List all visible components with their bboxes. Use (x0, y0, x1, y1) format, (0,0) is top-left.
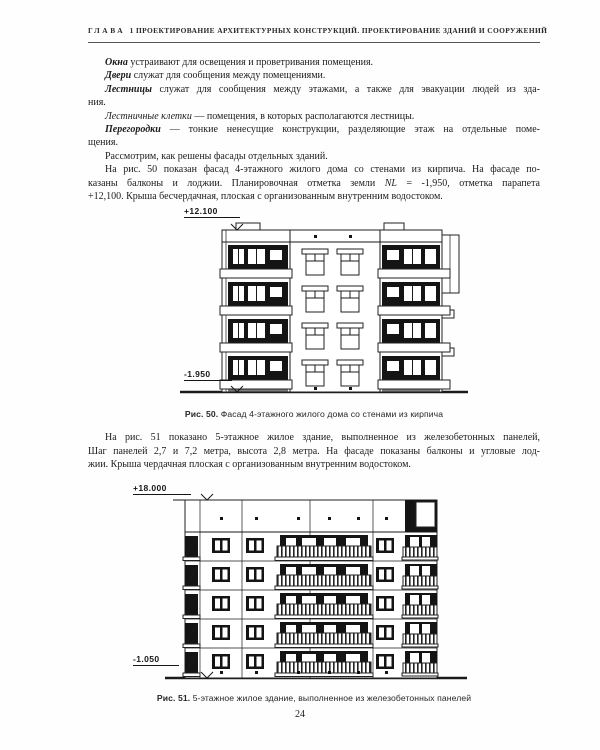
figure-51-caption: Рис. 51. 5-этажное жилое здание, выполне… (88, 693, 540, 703)
page-number: 24 (0, 709, 600, 720)
facade-elevation-svg-fig51 (128, 482, 535, 689)
text-run: Шаг панелей 2,7 и 7,2 метра, высота 2,8 … (88, 446, 540, 457)
text-line: казаны балконы и лоджии. Планировочная о… (88, 177, 540, 190)
text-run: Рассмотрим, как решены фасады отдельных … (105, 151, 328, 162)
text-run: На рис. 51 показано 5-этажное жилое здан… (105, 432, 540, 443)
term-lestnichnye-kletki: Лестничные клетки (105, 111, 192, 122)
text-line: Лестничные клетки — помещения, в которых… (88, 110, 540, 123)
text-line: +12,100. Крыша бесчердачная, плоская с о… (88, 190, 540, 203)
book-page: ГЛАВА 1 ПРОЕКТИРОВАНИЕ АРХИТЕКТУРНЫХ КОН… (0, 0, 600, 750)
nl-mark: NL (385, 178, 397, 189)
elevation-mark-roof: +18.000 (133, 483, 191, 495)
figure-51-drawing: +18.000 -1.050 (128, 482, 535, 689)
elevation-mark-parapet: +12.100 (184, 206, 240, 218)
text-run: жии. Крыша чердачная плоская с организов… (88, 459, 411, 470)
text-line: щения. (88, 136, 540, 149)
text-line: жии. Крыша чердачная плоская с организов… (88, 458, 540, 471)
text-run: На рис. 50 показан фасад 4-этажного жило… (105, 164, 540, 175)
figure-51-caption-text: 5-этажное жилое здание, выполненное из ж… (190, 693, 471, 703)
elevation-mark-ground: -1.950 (184, 369, 232, 381)
text-run: казаны балконы и лоджии. Планировочная о… (88, 178, 385, 189)
term-okna: Окна (105, 57, 128, 68)
text-line: Окна устраивают для освещения и проветри… (88, 56, 540, 69)
term-dveri: Двери (105, 70, 131, 81)
text-run: служат для сообщения между этажами, а та… (152, 84, 540, 95)
body-text-block-1: Окна устраивают для освещения и проветри… (88, 56, 540, 203)
text-run: служат для сообщения между помещениями. (131, 70, 325, 81)
chapter-label: ГЛАВА 1 (88, 26, 136, 35)
text-run: — помещения, в которых располагаются лес… (192, 111, 414, 122)
figure-50-caption: Рис. 50. Фасад 4-этажного жилого дома со… (88, 409, 540, 419)
text-line: Перегородки — тонкие ненесущие конструкц… (88, 123, 540, 136)
text-line: На рис. 50 показан фасад 4-этажного жило… (88, 163, 540, 176)
text-line: ния. (88, 96, 540, 109)
text-line: Двери служат для сообщения между помещен… (88, 69, 540, 82)
text-run: щения. (88, 137, 118, 148)
text-run: устраивают для освещения и проветривания… (128, 57, 373, 68)
body-text-block-2: На рис. 51 показано 5-этажное жилое здан… (88, 431, 540, 471)
text-line: Шаг панелей 2,7 и 7,2 метра, высота 2,8 … (88, 445, 540, 458)
figure-50-drawing: +12.100 -1.950 (178, 205, 470, 402)
elevation-mark-ground: -1.050 (133, 654, 179, 666)
figure-50-caption-text: Фасад 4-этажного жилого дома со стенами … (218, 409, 443, 419)
header-title: ПРОЕКТИРОВАНИЕ АРХИТЕКТУРНЫХ КОНСТРУКЦИЙ… (136, 26, 547, 35)
page-content: ГЛАВА 1 ПРОЕКТИРОВАНИЕ АРХИТЕКТУРНЫХ КОН… (0, 0, 600, 703)
text-line: Рассмотрим, как решены фасады отдельных … (88, 150, 540, 163)
text-line: На рис. 51 показано 5-этажное жилое здан… (88, 431, 540, 444)
text-run: ния. (88, 97, 106, 108)
text-line: Лестницы служат для сообщения между этаж… (88, 83, 540, 96)
text-run: +12,100. Крыша бесчердачная, плоская с о… (88, 191, 443, 202)
text-run: = -1,950, отметка парапета (397, 178, 540, 189)
term-peregorodki: Перегородки (105, 124, 161, 135)
running-header: ГЛАВА 1 ПРОЕКТИРОВАНИЕ АРХИТЕКТУРНЫХ КОН… (88, 26, 540, 43)
term-lestnitsy: Лестницы (105, 84, 152, 95)
figure-51-label: Рис. 51. (157, 693, 190, 703)
text-run: — тонкие ненесущие конструкции, разделяю… (161, 124, 540, 135)
figure-50-label: Рис. 50. (185, 409, 218, 419)
